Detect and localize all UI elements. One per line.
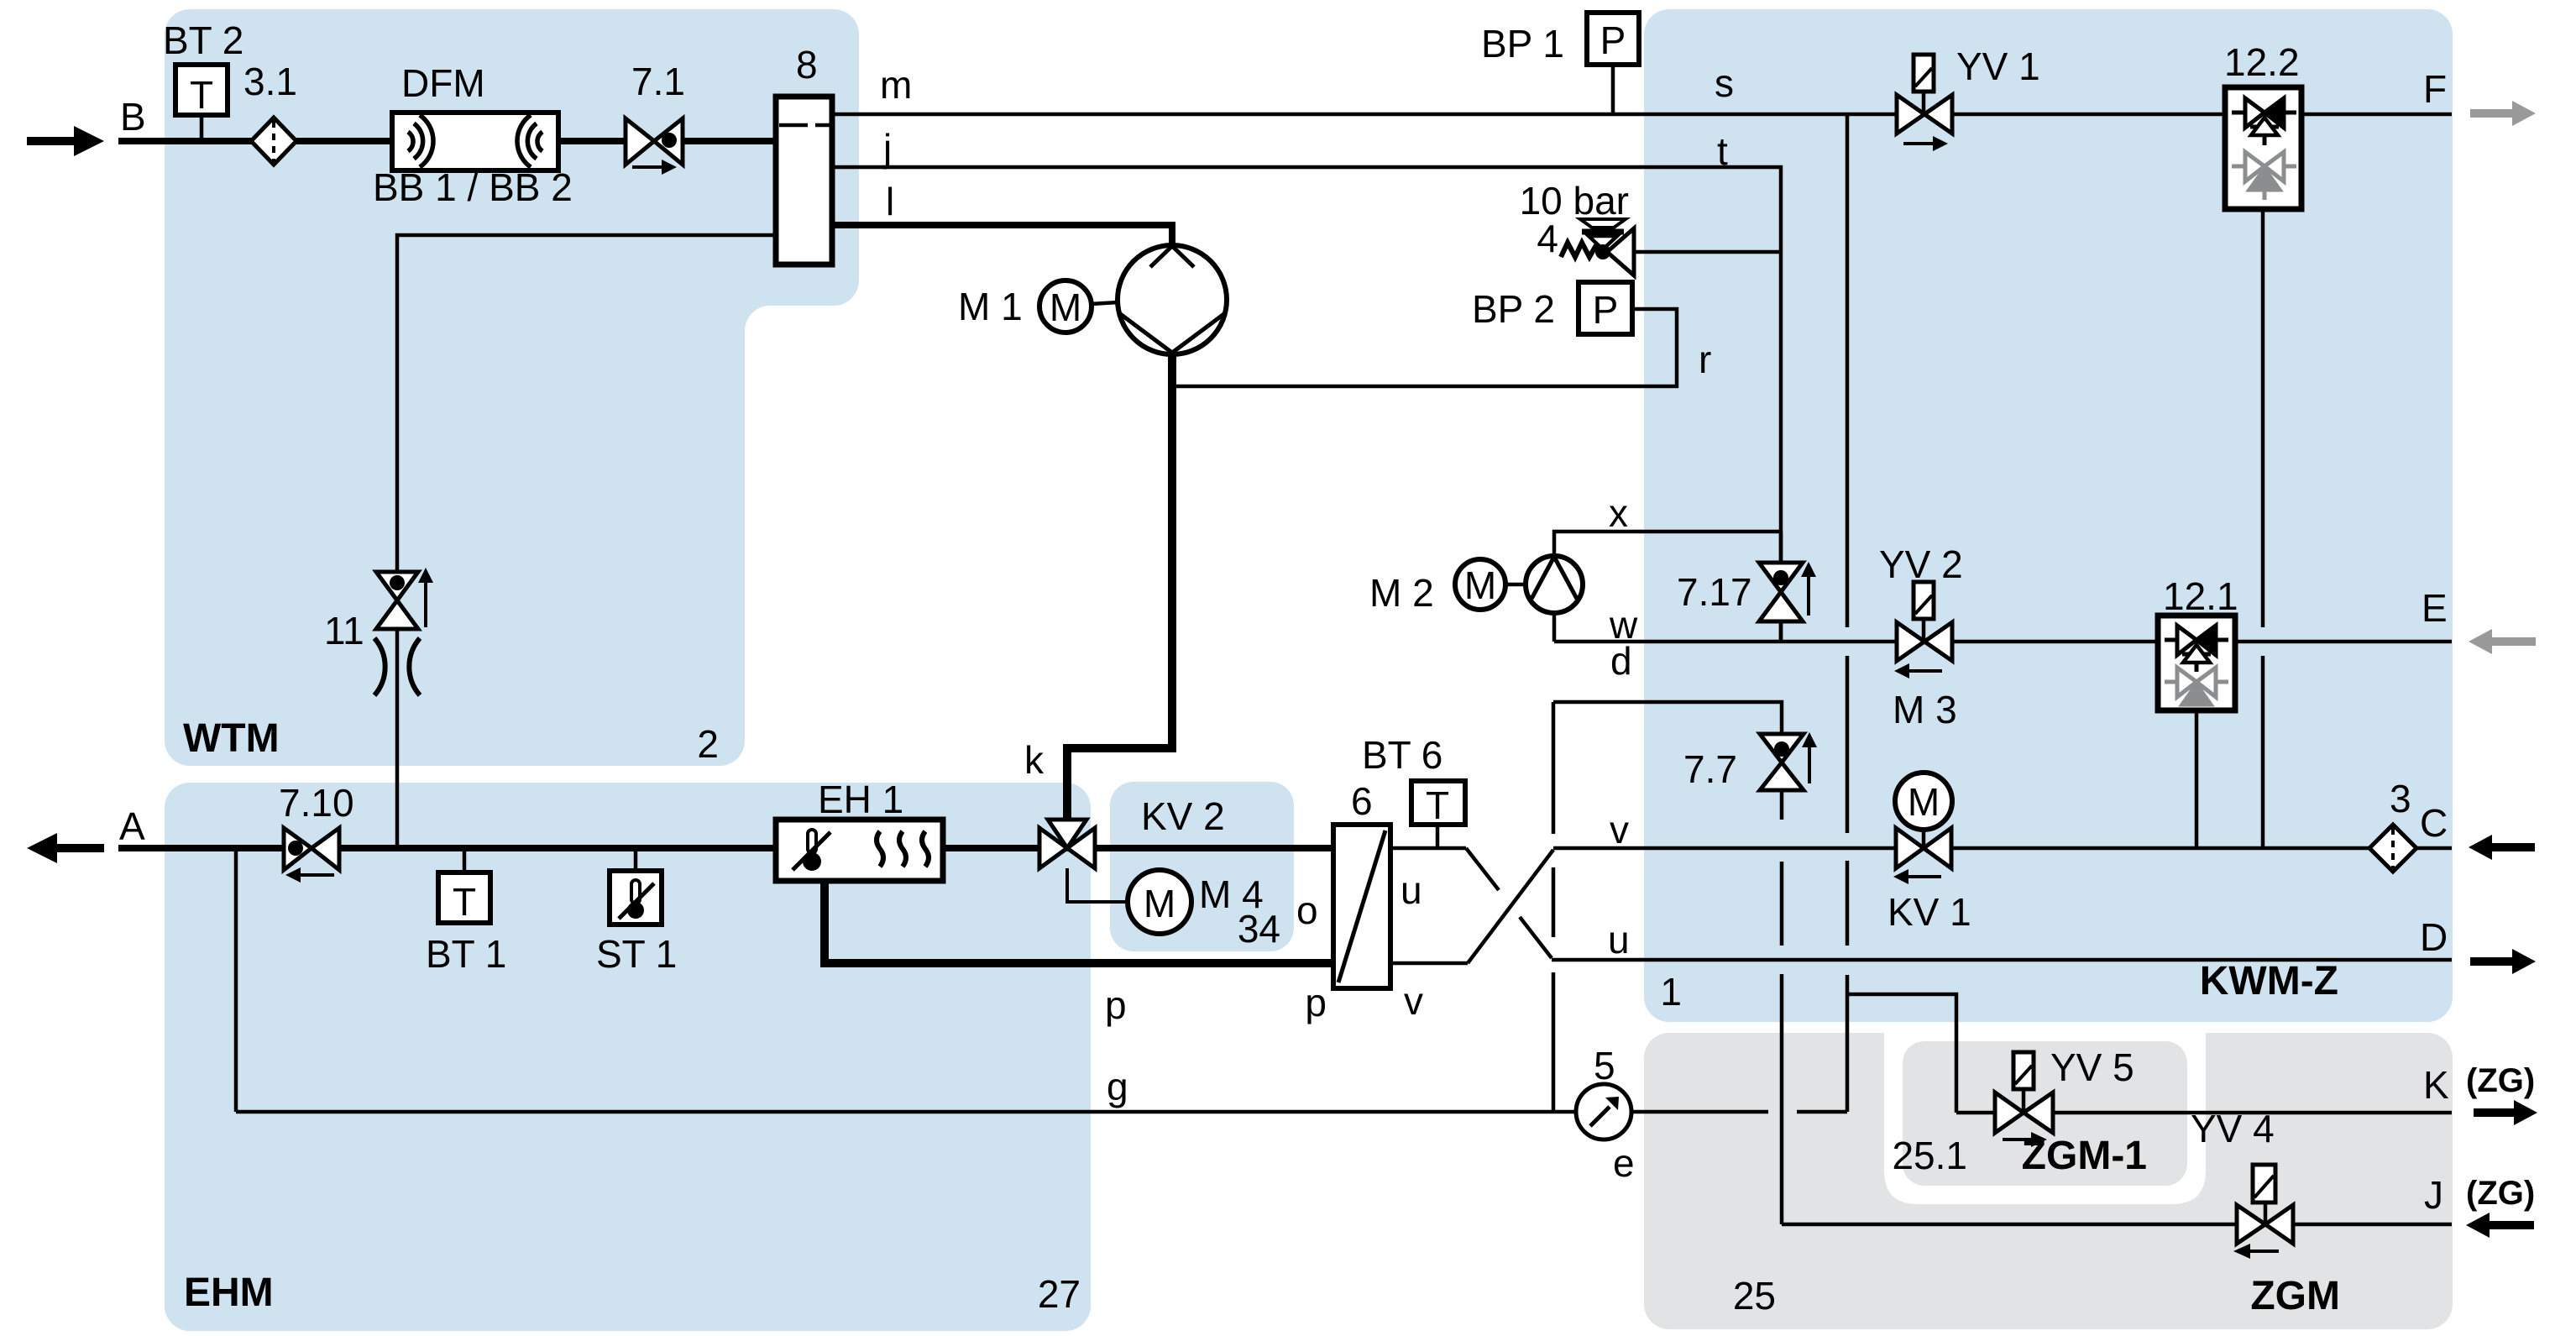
svg-text:YV 4: YV 4 — [2191, 1107, 2275, 1150]
svg-text:t: t — [1717, 129, 1728, 173]
svg-text:BB 1 / BB 2: BB 1 / BB 2 — [373, 165, 573, 209]
svg-text:25: 25 — [1733, 1274, 1776, 1318]
svg-text:YV 5: YV 5 — [2050, 1045, 2134, 1089]
svg-text:5: 5 — [1594, 1044, 1615, 1087]
svg-text:J: J — [2424, 1173, 2443, 1217]
svg-text:M: M — [1464, 563, 1496, 607]
svg-text:l: l — [886, 180, 894, 223]
svg-text:v: v — [1610, 808, 1629, 851]
svg-text:KV 1: KV 1 — [1887, 890, 1971, 934]
svg-text:8: 8 — [796, 43, 818, 86]
svg-text:p: p — [1105, 983, 1127, 1027]
svg-text:7.10: 7.10 — [279, 781, 354, 825]
svg-text:4: 4 — [1537, 217, 1558, 260]
svg-text:7.17: 7.17 — [1677, 570, 1752, 614]
svg-text:34: 34 — [1238, 907, 1280, 951]
svg-text:EHM: EHM — [184, 1271, 274, 1315]
svg-text:p: p — [1305, 981, 1327, 1024]
svg-text:EH 1: EH 1 — [818, 778, 903, 821]
svg-text:B: B — [120, 95, 146, 139]
svg-text:D: D — [2420, 915, 2448, 959]
svg-text:u: u — [1608, 918, 1630, 961]
svg-text:u: u — [1401, 868, 1422, 912]
svg-text:12.2: 12.2 — [2224, 40, 2300, 84]
svg-text:x: x — [1609, 491, 1628, 535]
svg-text:o: o — [1296, 888, 1318, 932]
svg-text:11: 11 — [324, 609, 364, 652]
svg-text:7.1: 7.1 — [631, 60, 685, 103]
svg-text:s: s — [1715, 61, 1734, 105]
svg-text:d: d — [1610, 639, 1632, 683]
svg-text:YV 2: YV 2 — [1879, 542, 1963, 586]
svg-text:ST 1: ST 1 — [596, 932, 677, 976]
svg-text:12.1: 12.1 — [2163, 574, 2238, 618]
svg-text:27: 27 — [1038, 1272, 1081, 1316]
svg-text:BT 2: BT 2 — [163, 18, 243, 62]
svg-text:KWM-Z: KWM-Z — [2200, 959, 2338, 1003]
svg-text:7.7: 7.7 — [1683, 747, 1737, 791]
svg-text:2: 2 — [697, 722, 719, 766]
svg-text:25.1: 25.1 — [1892, 1134, 1967, 1177]
svg-text:M: M — [1908, 780, 1940, 824]
svg-text:DFM: DFM — [401, 61, 485, 105]
svg-text:j: j — [882, 126, 892, 170]
svg-text:F: F — [2423, 67, 2447, 111]
svg-text:6: 6 — [1351, 779, 1373, 823]
svg-text:g: g — [1107, 1065, 1128, 1108]
svg-text:P: P — [1593, 288, 1619, 332]
svg-text:10 bar: 10 bar — [1520, 179, 1629, 223]
svg-text:(ZG): (ZG) — [2466, 1175, 2535, 1212]
svg-text:WTM: WTM — [183, 716, 280, 761]
svg-text:P: P — [1600, 18, 1626, 62]
svg-text:K: K — [2423, 1063, 2449, 1107]
svg-text:E: E — [2422, 586, 2448, 630]
svg-text:M 1: M 1 — [958, 285, 1023, 328]
svg-text:1: 1 — [1660, 970, 1682, 1014]
svg-text:M 2: M 2 — [1369, 571, 1434, 615]
svg-text:KV 2: KV 2 — [1141, 794, 1225, 838]
svg-text:M: M — [1144, 882, 1175, 925]
svg-text:(ZG): (ZG) — [2466, 1062, 2535, 1099]
svg-text:M 3: M 3 — [1893, 688, 1957, 731]
svg-text:M: M — [1050, 286, 1081, 329]
svg-text:BT 6: BT 6 — [1362, 733, 1442, 777]
svg-text:e: e — [1613, 1141, 1635, 1185]
svg-text:k: k — [1024, 738, 1045, 782]
svg-text:T: T — [190, 73, 213, 117]
svg-text:C: C — [2420, 801, 2448, 845]
svg-text:ZGM: ZGM — [2250, 1274, 2340, 1318]
svg-text:YV 1: YV 1 — [1956, 45, 2040, 88]
svg-text:T: T — [1426, 783, 1449, 827]
svg-text:v: v — [1404, 979, 1423, 1023]
svg-text:m: m — [880, 63, 912, 107]
svg-text:r: r — [1699, 338, 1711, 381]
svg-text:BP 1: BP 1 — [1481, 22, 1564, 65]
svg-text:BP 2: BP 2 — [1472, 287, 1555, 331]
svg-text:T: T — [453, 880, 476, 924]
svg-text:3: 3 — [2390, 777, 2411, 820]
svg-text:BT 1: BT 1 — [426, 932, 506, 976]
svg-text:3.1: 3.1 — [243, 60, 297, 103]
svg-text:A: A — [119, 804, 145, 848]
